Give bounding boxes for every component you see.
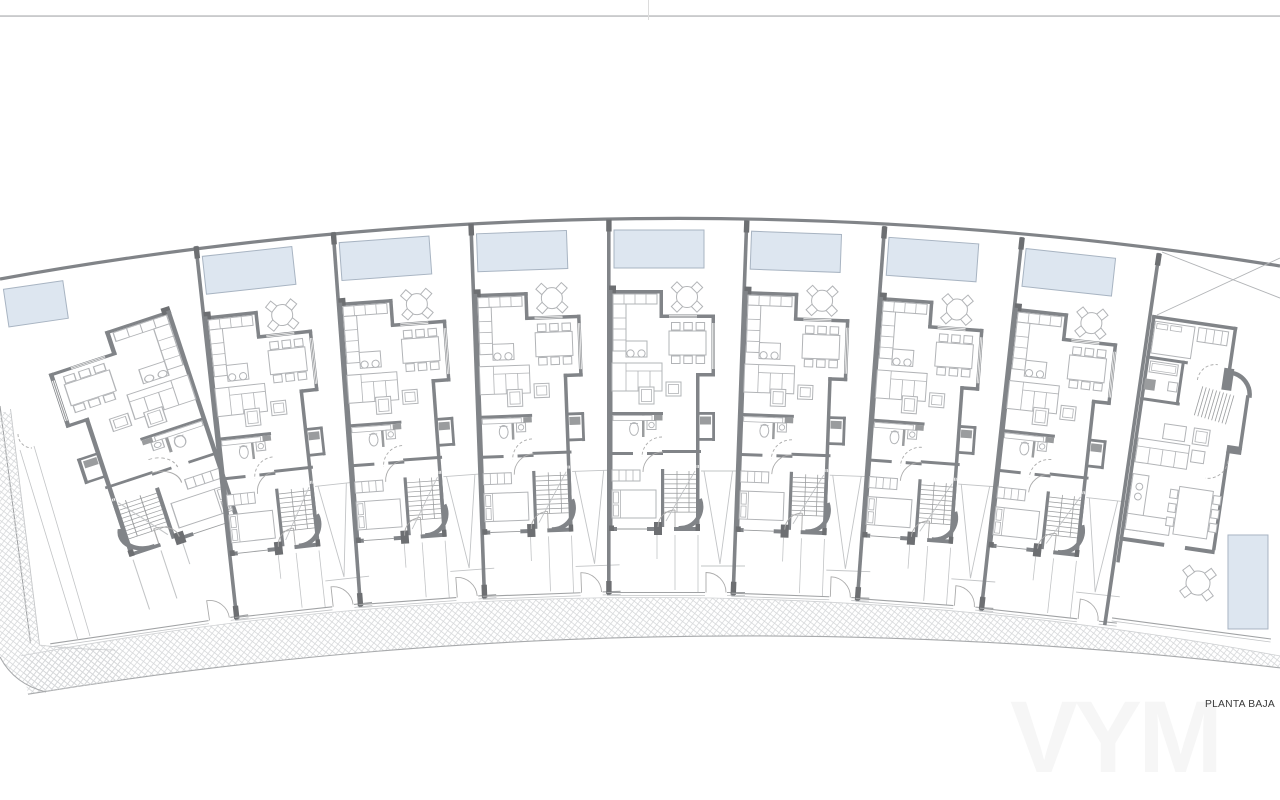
svg-text:VYM: VYM — [1010, 680, 1219, 794]
svg-text:PLANTA BAJA: PLANTA BAJA — [1205, 699, 1275, 710]
